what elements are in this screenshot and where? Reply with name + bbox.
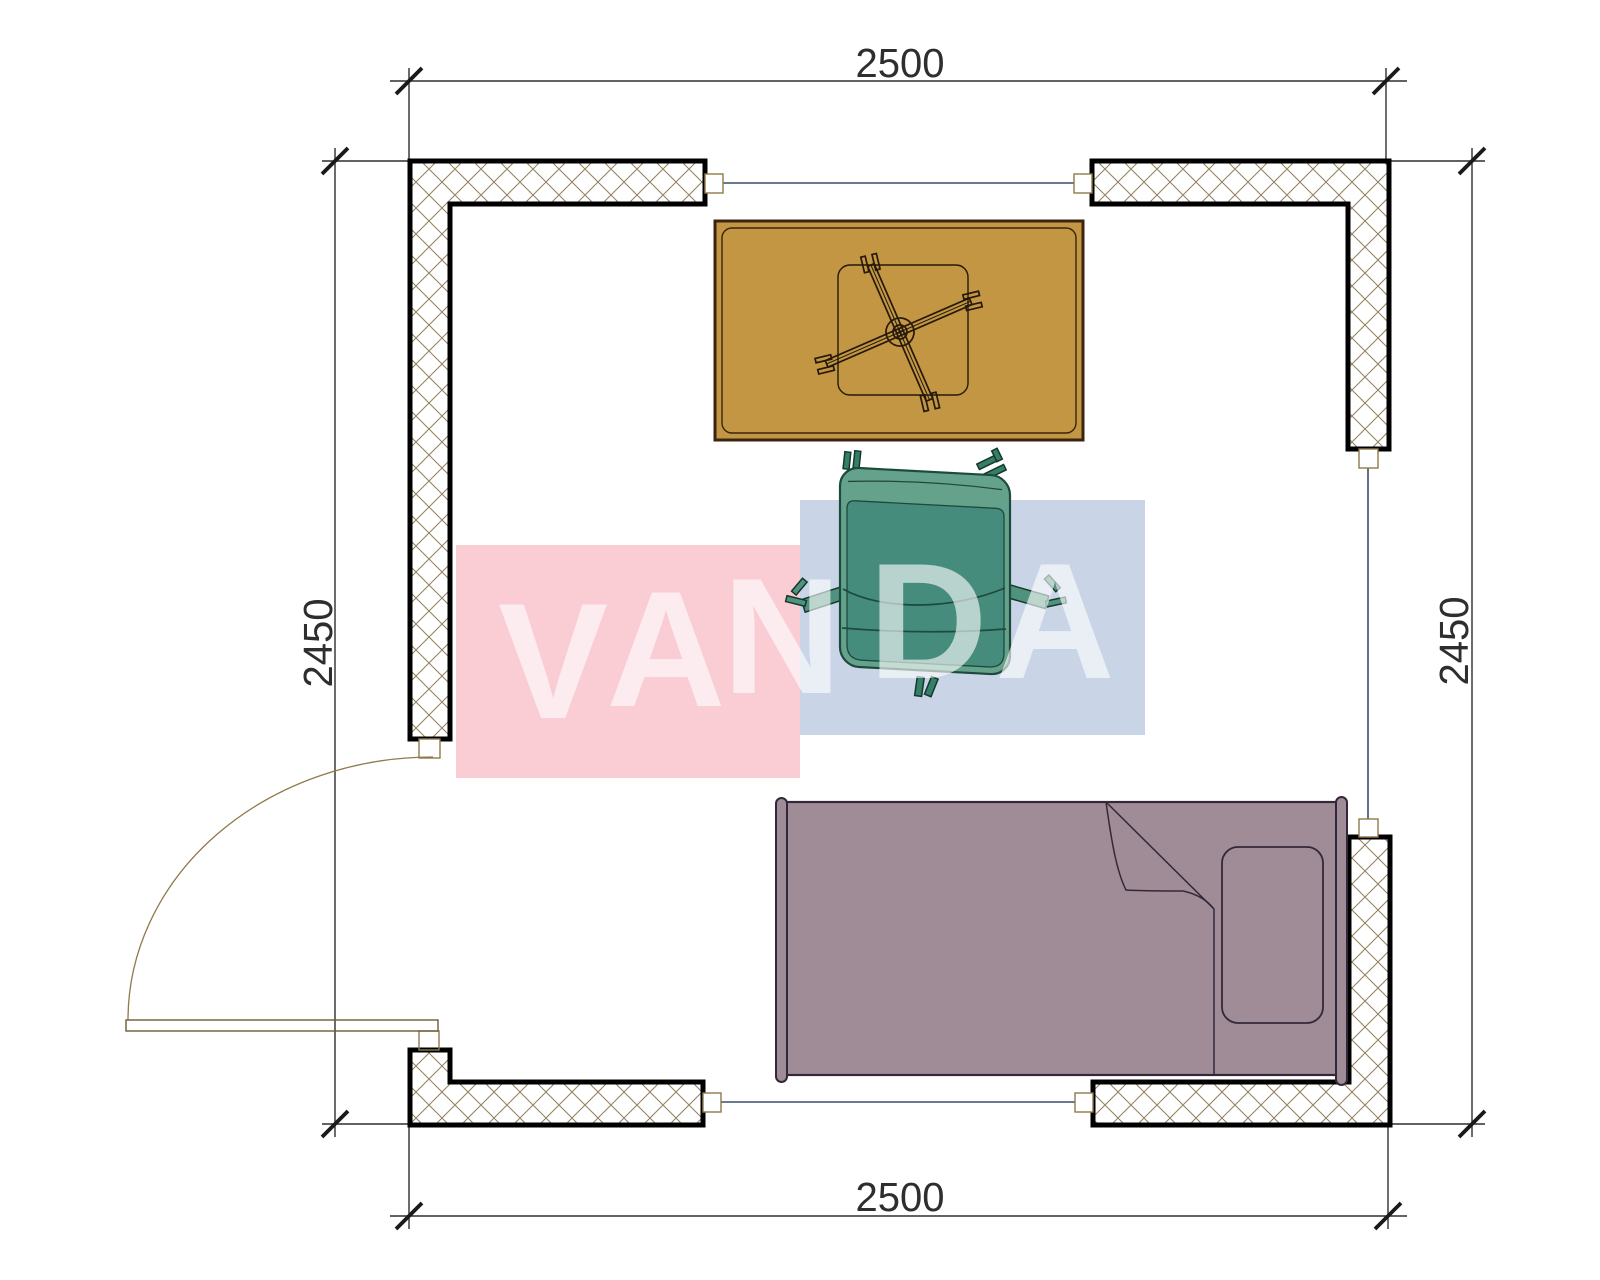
svg-text:2450: 2450 <box>1431 597 1477 686</box>
svg-text:2450: 2450 <box>295 599 341 688</box>
svg-text:2500: 2500 <box>856 40 945 86</box>
svg-text:2500: 2500 <box>856 1174 945 1220</box>
